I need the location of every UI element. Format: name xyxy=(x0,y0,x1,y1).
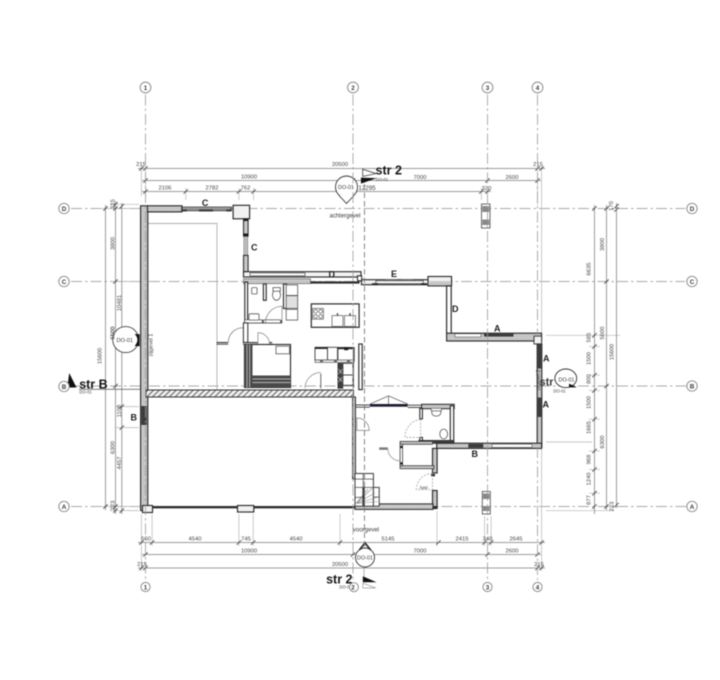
svg-text:585: 585 xyxy=(587,333,593,343)
svg-text:3800: 3800 xyxy=(111,237,117,250)
svg-text:1500: 1500 xyxy=(587,396,593,409)
svg-text:zijgevel 1: zijgevel 1 xyxy=(149,334,155,357)
svg-text:15600: 15600 xyxy=(98,348,104,364)
svg-text:20500: 20500 xyxy=(332,162,348,168)
svg-text:10900: 10900 xyxy=(241,549,257,555)
svg-text:1500: 1500 xyxy=(587,352,593,365)
svg-text:DO-01: DO-01 xyxy=(338,185,354,191)
svg-text:2600: 2600 xyxy=(506,549,519,555)
svg-text:D: D xyxy=(452,304,459,314)
svg-text:223: 223 xyxy=(610,502,616,512)
svg-text:B: B xyxy=(62,384,67,391)
svg-text:320: 320 xyxy=(482,186,492,192)
svg-text:D: D xyxy=(690,206,695,213)
svg-text:6300: 6300 xyxy=(111,441,117,454)
svg-text:A: A xyxy=(62,504,67,511)
svg-text:2600: 2600 xyxy=(506,175,519,181)
svg-text:B: B xyxy=(472,449,479,459)
svg-text:215: 215 xyxy=(533,162,543,168)
svg-text:2106: 2106 xyxy=(159,186,172,192)
svg-text:4540: 4540 xyxy=(189,537,202,543)
svg-text:4457: 4457 xyxy=(117,457,123,470)
svg-text:7000: 7000 xyxy=(414,549,427,555)
svg-text:6300: 6300 xyxy=(600,436,606,449)
svg-text:kast: kast xyxy=(420,485,429,490)
svg-text:3: 3 xyxy=(486,585,490,592)
svg-text:12295: 12295 xyxy=(358,185,376,192)
svg-text:2: 2 xyxy=(351,85,355,92)
svg-text:1: 1 xyxy=(144,585,148,592)
svg-text:877: 877 xyxy=(587,495,593,505)
svg-text:20500: 20500 xyxy=(332,562,348,568)
svg-text:3800: 3800 xyxy=(600,238,606,251)
svg-text:E: E xyxy=(391,269,397,279)
svg-text:C: C xyxy=(251,243,258,253)
svg-text:C: C xyxy=(202,198,209,208)
svg-text:A: A xyxy=(543,354,550,364)
svg-text:968: 968 xyxy=(587,455,593,465)
svg-text:str 2: str 2 xyxy=(376,164,402,178)
svg-text:2645: 2645 xyxy=(510,537,523,543)
svg-text:10900: 10900 xyxy=(241,175,257,181)
svg-text:B: B xyxy=(690,384,695,391)
svg-text:C: C xyxy=(690,279,695,286)
svg-text:2: 2 xyxy=(351,585,355,592)
svg-text:DO-01: DO-01 xyxy=(357,556,373,562)
svg-text:voorgevel: voorgevel xyxy=(353,528,379,534)
svg-text:C: C xyxy=(62,279,67,286)
svg-text:A: A xyxy=(690,504,695,511)
svg-text:DO-01: DO-01 xyxy=(79,390,92,395)
svg-text:10481: 10481 xyxy=(117,295,123,311)
svg-text:5500: 5500 xyxy=(111,327,117,340)
svg-text:4: 4 xyxy=(536,585,540,592)
svg-text:215: 215 xyxy=(136,162,146,168)
svg-text:achtergevel: achtergevel xyxy=(329,214,360,220)
svg-text:3: 3 xyxy=(486,85,490,92)
svg-text:215: 215 xyxy=(111,199,117,209)
svg-text:DO-01: DO-01 xyxy=(116,338,132,344)
svg-text:DO-01: DO-01 xyxy=(553,388,566,393)
svg-text:1: 1 xyxy=(144,85,148,92)
svg-text:D: D xyxy=(62,206,67,213)
svg-text:7000: 7000 xyxy=(414,175,427,181)
svg-text:6635: 6635 xyxy=(587,263,593,276)
svg-text:1665: 1665 xyxy=(587,421,593,434)
svg-text:A: A xyxy=(543,400,550,410)
svg-text:str: str xyxy=(540,377,555,389)
svg-text:2415: 2415 xyxy=(456,537,469,543)
svg-text:2782: 2782 xyxy=(206,186,219,192)
svg-text:1240: 1240 xyxy=(587,473,593,486)
svg-text:15600: 15600 xyxy=(610,344,616,360)
svg-text:170: 170 xyxy=(609,201,615,211)
svg-text:800: 800 xyxy=(587,374,593,384)
svg-text:4540: 4540 xyxy=(290,537,303,543)
svg-text:5600: 5600 xyxy=(600,327,606,340)
svg-text:215: 215 xyxy=(534,562,544,568)
svg-text:560: 560 xyxy=(141,537,151,543)
svg-text:223: 223 xyxy=(111,501,117,511)
svg-text:5145: 5145 xyxy=(382,537,395,543)
svg-text:4: 4 xyxy=(536,85,540,92)
svg-text:DO-01: DO-01 xyxy=(376,177,389,182)
svg-text:D: D xyxy=(329,270,336,280)
svg-text:1100: 1100 xyxy=(117,405,123,417)
svg-text:DO-01: DO-01 xyxy=(559,378,575,384)
svg-text:A: A xyxy=(494,324,501,334)
svg-text:B: B xyxy=(131,413,138,423)
svg-text:762: 762 xyxy=(241,186,251,192)
svg-text:745: 745 xyxy=(241,537,251,543)
